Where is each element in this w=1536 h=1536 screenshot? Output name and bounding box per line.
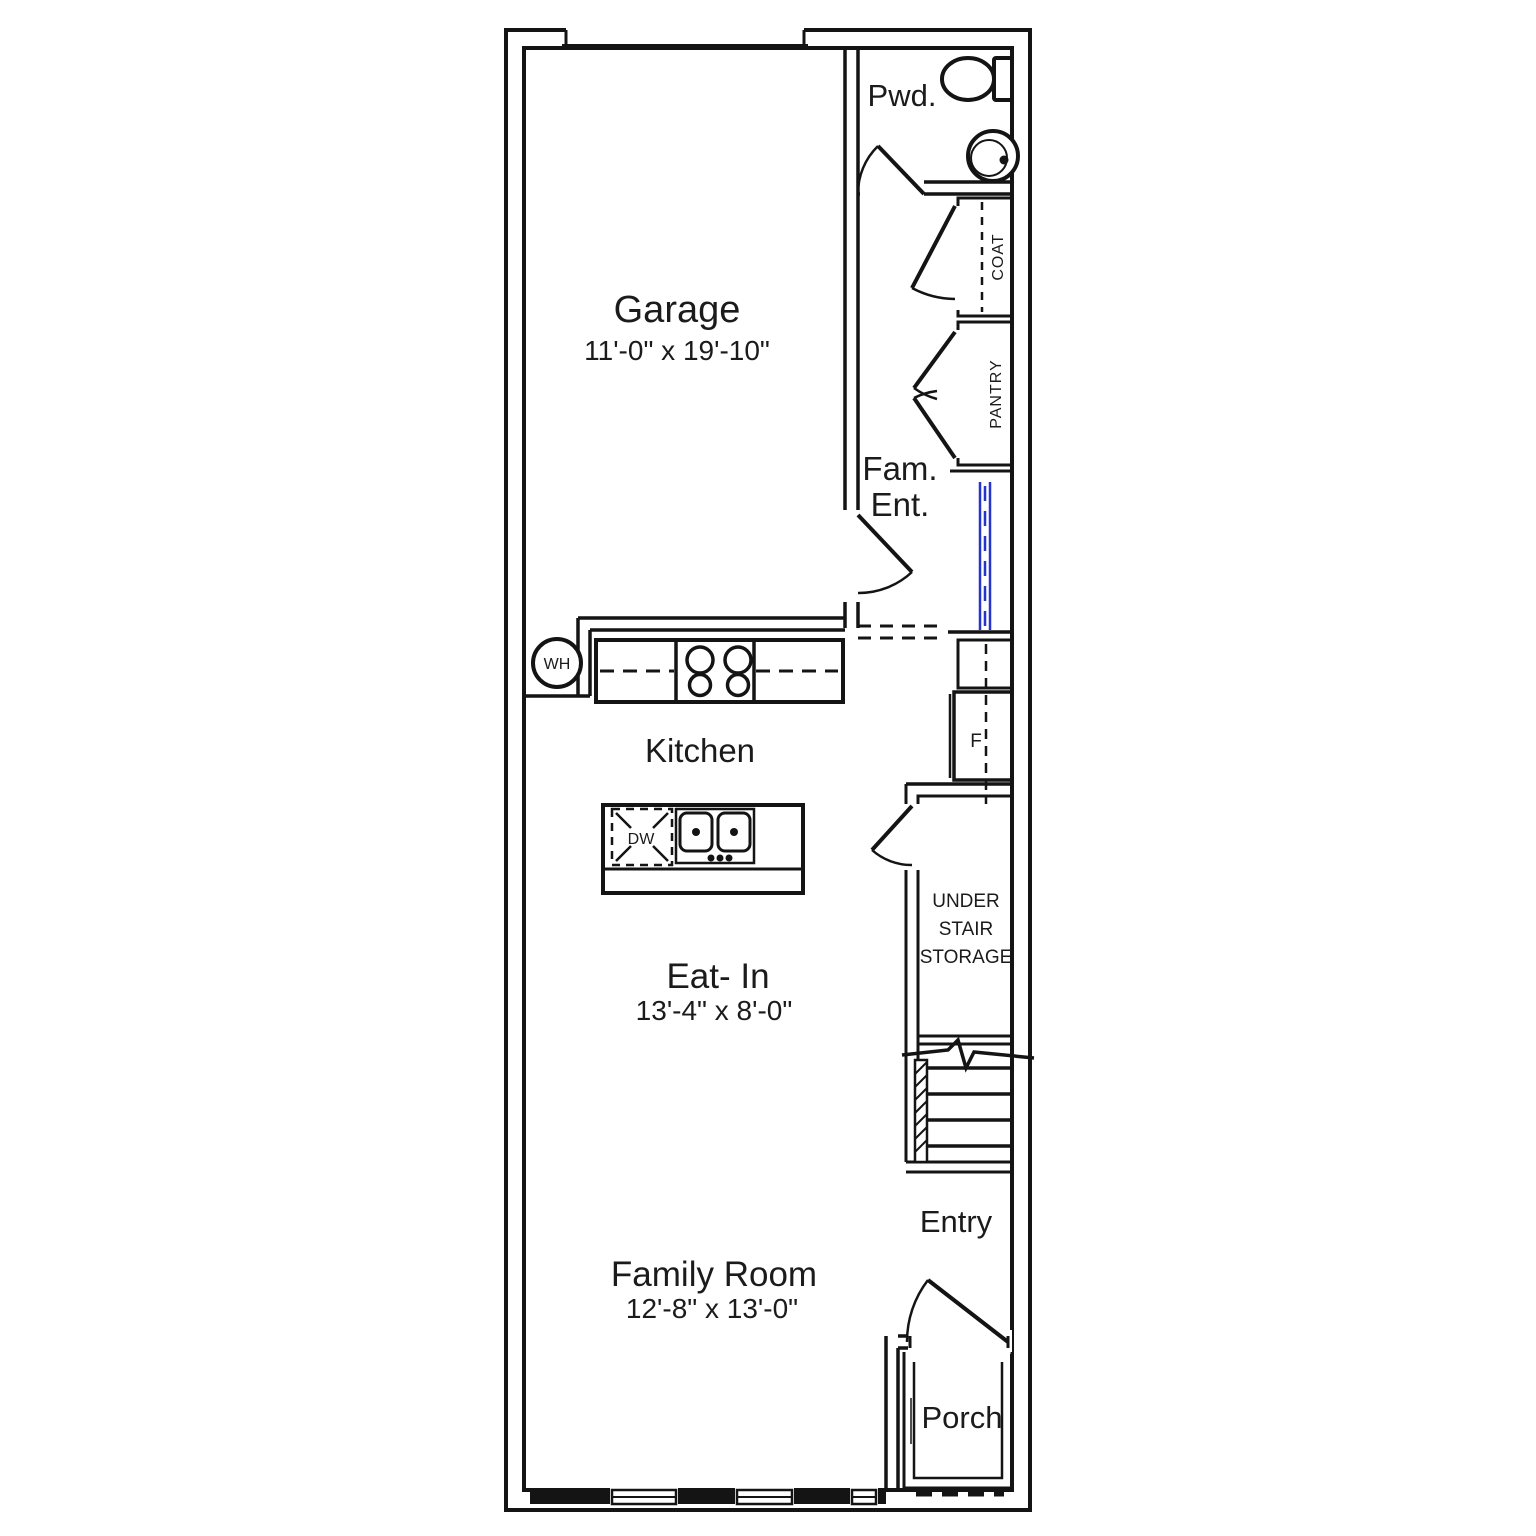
stairs bbox=[902, 1040, 1034, 1162]
kitchen-label: Kitchen bbox=[645, 732, 755, 769]
double-sink-icon bbox=[676, 809, 754, 863]
door-pantry bbox=[914, 332, 955, 458]
garage-label: Garage bbox=[614, 289, 741, 331]
hall-cased-opening-dashed bbox=[858, 626, 946, 638]
window-1 bbox=[610, 1486, 678, 1508]
porch-label: Porch bbox=[922, 1400, 1003, 1435]
opening-fam-ent-door bbox=[840, 510, 864, 602]
door-pantry-top-leaf bbox=[914, 332, 955, 388]
door-coat bbox=[912, 206, 955, 299]
under-stair-storage-room bbox=[918, 796, 1012, 1036]
stove-icon bbox=[676, 640, 754, 702]
powder-label: Pwd. bbox=[868, 78, 937, 113]
eat-in-label: Eat- In bbox=[666, 957, 769, 996]
wall-family-right bbox=[886, 1336, 898, 1490]
floor-plan-drawing: Garage 11'-0" x 19'-10" Pwd. Fam. Ent. C… bbox=[0, 0, 1536, 1536]
eat-in-dims: 13'-4" x 8'-0" bbox=[636, 995, 793, 1026]
sink-icon bbox=[968, 131, 1018, 181]
garage-dims: 11'-0" x 19'-10" bbox=[584, 335, 770, 366]
opening-powder-door bbox=[860, 176, 924, 198]
dishwasher-label: DW bbox=[628, 831, 656, 848]
window-2 bbox=[735, 1486, 794, 1508]
wall-entry-top bbox=[906, 1162, 1012, 1172]
under-stair-label-line3: STORAGE bbox=[920, 947, 1013, 968]
opening-coat-door bbox=[954, 206, 964, 310]
option-line-blue bbox=[980, 482, 990, 630]
refrigerator-label: F bbox=[970, 731, 982, 752]
wall-family-bottom-band bbox=[530, 1490, 886, 1504]
wall-garage-bottom bbox=[578, 618, 845, 630]
opening-pantry-doors bbox=[954, 330, 964, 458]
under-stair-label-line1: UNDER bbox=[932, 891, 1000, 912]
family-room-dims: 12'-8" x 13'-0" bbox=[626, 1293, 798, 1324]
door-pantry-bottom-leaf bbox=[914, 398, 955, 458]
family-room-label: Family Room bbox=[611, 1255, 817, 1294]
door-fam-ent bbox=[858, 515, 912, 593]
door-fam-ent-swing bbox=[858, 572, 912, 593]
entry-label: Entry bbox=[920, 1204, 993, 1239]
fridge-box bbox=[954, 692, 1012, 780]
stair-hatch-wall bbox=[915, 1060, 927, 1162]
water-heater-label: WH bbox=[544, 656, 571, 673]
coat-label: COAT bbox=[990, 233, 1007, 280]
floor-plan-page: Garage 11'-0" x 19'-10" Pwd. Fam. Ent. C… bbox=[0, 0, 1536, 1536]
doors bbox=[562, 30, 1008, 1348]
option-line-solid bbox=[980, 482, 990, 630]
window-3 bbox=[850, 1486, 878, 1508]
door-coat-leaf bbox=[912, 206, 955, 288]
stair-treads bbox=[927, 1068, 1012, 1146]
pantry-label: PANTRY bbox=[988, 359, 1005, 428]
door-coat-swing bbox=[912, 288, 955, 299]
under-stair-label-line2: STAIR bbox=[939, 919, 994, 940]
toilet-icon bbox=[942, 58, 1012, 100]
labels: Garage 11'-0" x 19'-10" Pwd. Fam. Ent. C… bbox=[544, 78, 1013, 1435]
powder-fixtures bbox=[942, 58, 1018, 181]
door-fam-ent-leaf bbox=[858, 515, 912, 572]
kitchen-fixtures bbox=[533, 202, 986, 893]
fam-ent-label-line2: Ent. bbox=[871, 486, 930, 523]
fam-ent-label-line1: Fam. bbox=[862, 450, 937, 487]
